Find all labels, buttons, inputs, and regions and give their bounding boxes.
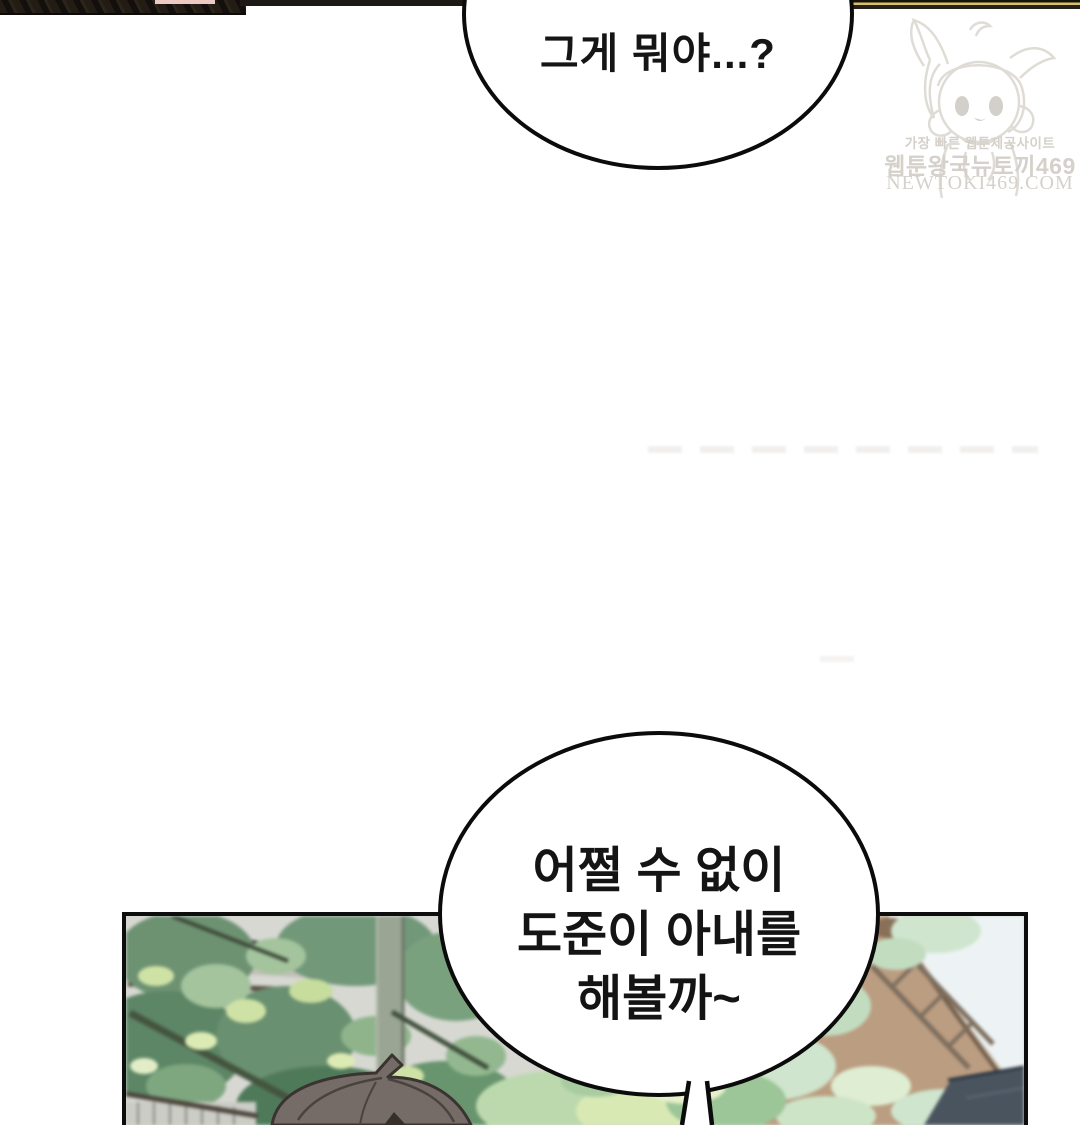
watermark-domain: NEWTOKI469.COM (878, 172, 1080, 195)
bubble-line: 해볼까~ (442, 967, 876, 1031)
speech-bubble-top: 그게 뭐야...? (462, 0, 854, 170)
watermark: 가장 빠른 웹툰제공사이트 웹툰왕국뉴토끼469 NEWTOKI469.COM (878, 14, 1080, 202)
faint-text-smudge (648, 446, 1038, 453)
speech-bubble-top-text: 그게 뭐야...? (466, 20, 850, 81)
bubble-line: 어쩔 수 없이 (442, 839, 876, 903)
speech-bubble-bottom: 어쩔 수 없이 도준이 아내를 해볼까~ (438, 731, 880, 1097)
top-panel-strip-gold-edge (852, 0, 1080, 9)
bubble-line: 도준이 아내를 (442, 903, 876, 967)
comic-page: 그게 뭐야...? (0, 0, 1080, 1125)
top-panel-strip-thin (240, 0, 472, 6)
speech-bubble-bottom-text: 어쩔 수 없이 도준이 아내를 해볼까~ (442, 839, 876, 1031)
top-panel-strip-pink-fragment (155, 0, 215, 4)
faint-mark (820, 656, 854, 662)
speech-bubble-tail (668, 1078, 724, 1125)
